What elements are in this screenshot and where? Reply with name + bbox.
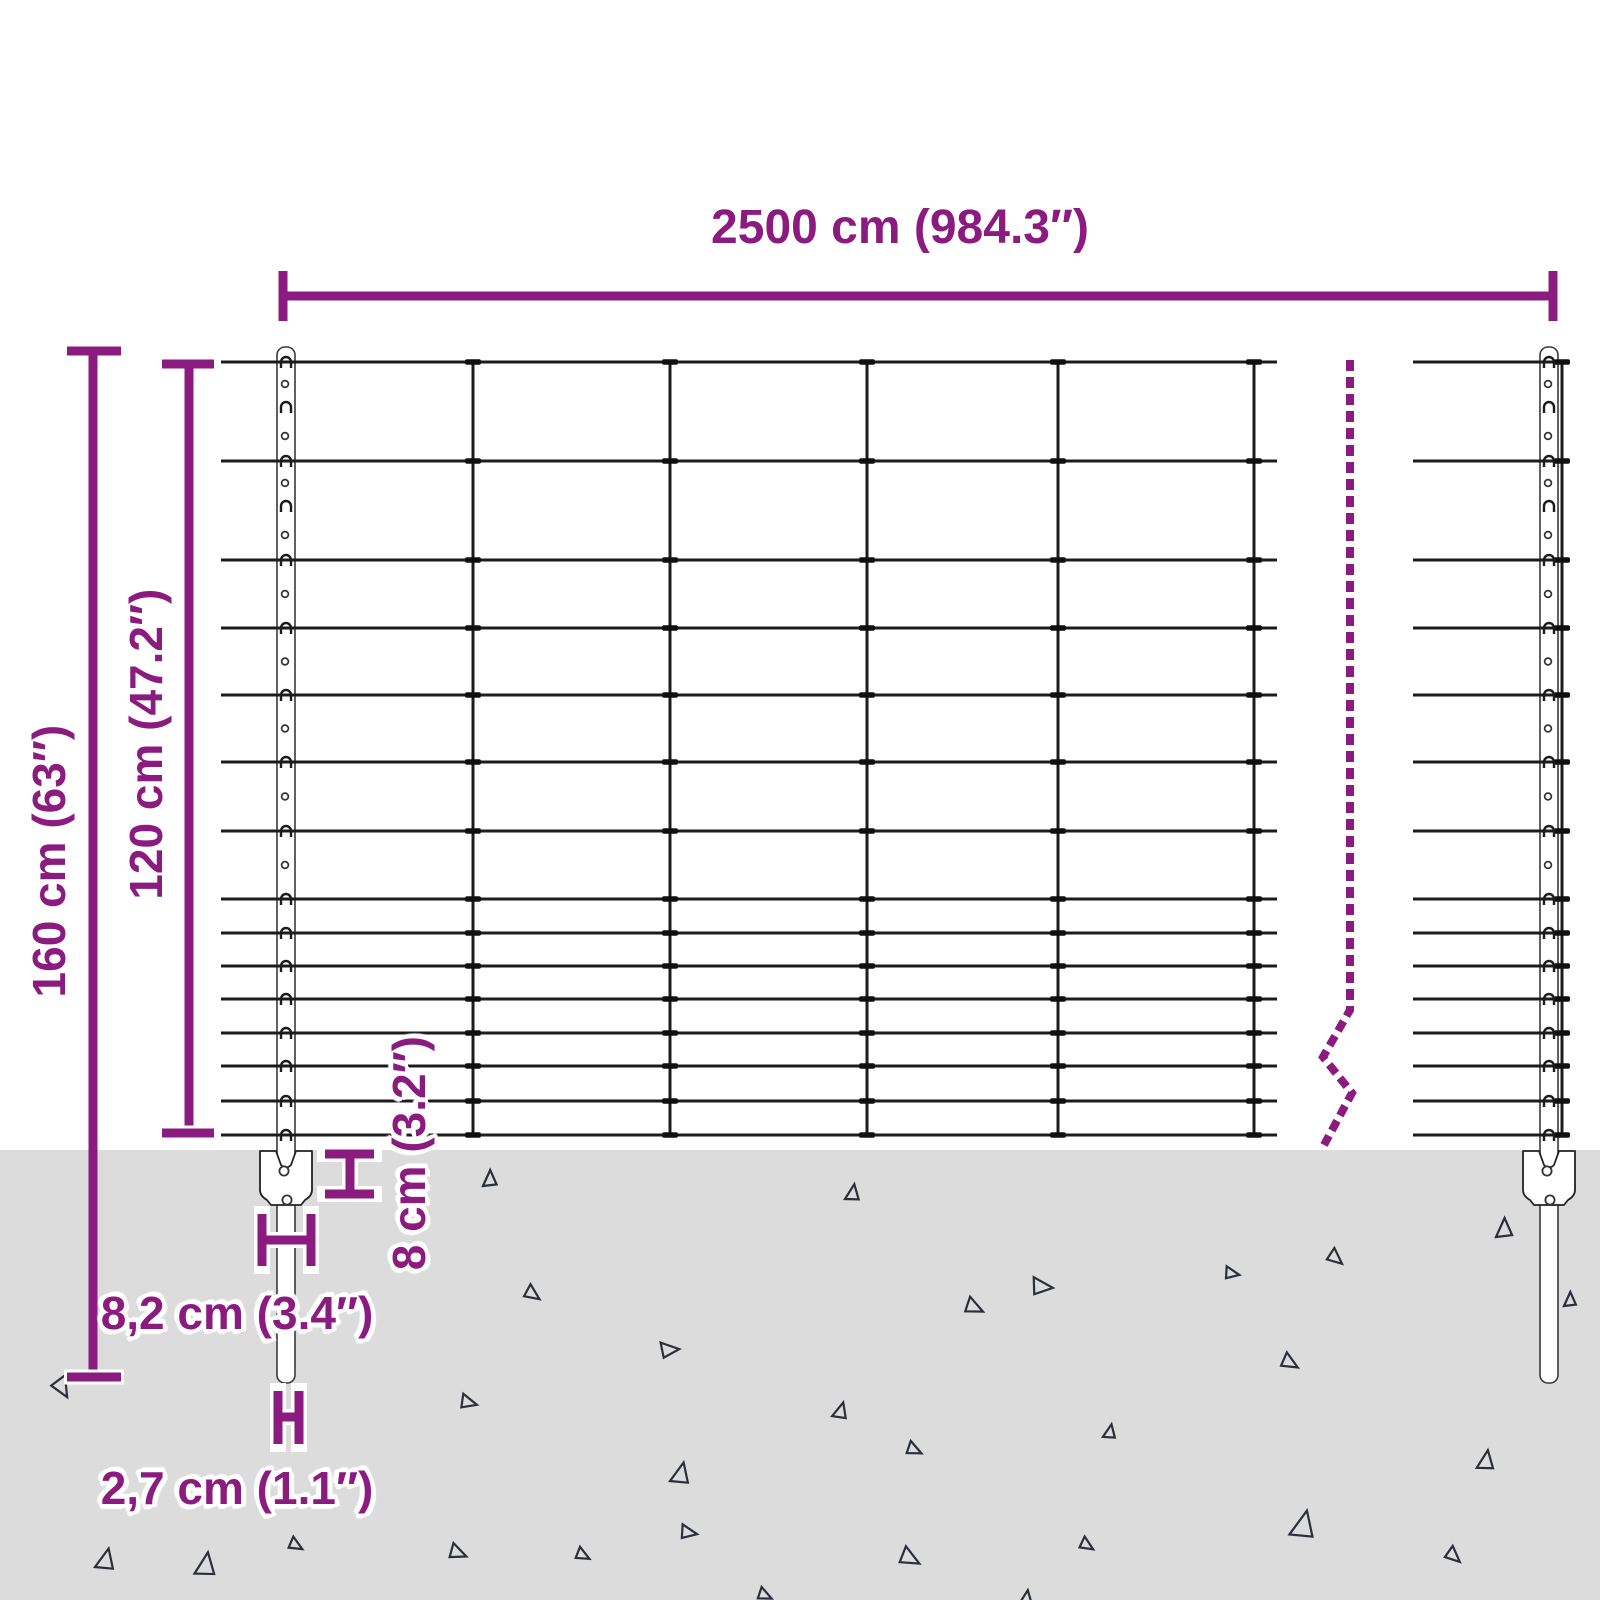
wire-knot [465,359,481,365]
wire-knot [1554,1030,1570,1036]
wire-knot [1050,1098,1066,1104]
post-hole [282,862,289,869]
wire-knot [1050,359,1066,365]
wire-knot [662,963,678,969]
wire-knot [465,1132,481,1138]
wire-knot [465,625,481,631]
net-height-dimension-label: 120 cm (47.2″) [122,489,170,999]
wire-knot [859,557,875,563]
wire-knot [662,1030,678,1036]
total-height-dimension-label: 160 cm (63″) [25,606,73,1116]
wire-knot [1554,359,1570,365]
wire-knot [662,1098,678,1104]
wire-knot [1554,1098,1570,1104]
post-thickness-dimension-label: 2,7 cm (1.1″) [7,1464,467,1512]
wire-knot [1050,828,1066,834]
post-hole [282,793,289,800]
post-hole [1545,591,1552,598]
wire-knot [1050,458,1066,464]
wire-knot [1050,692,1066,698]
wire-knot [662,1063,678,1069]
wire-knot [1246,1030,1262,1036]
wire-knot [1050,1030,1066,1036]
wire-knot [465,557,481,563]
fence-dimension-diagram: 2500 cm (984.3″) 160 cm (63″) 120 cm (47… [0,0,1600,1600]
wire-knot [1050,1063,1066,1069]
net-height-dimension-tick [162,1129,214,1138]
anchor-plate-hole [1542,1166,1551,1175]
wire-knot [1554,963,1570,969]
post-hole [282,480,289,487]
wire-knot [465,759,481,765]
wire-knot [1246,625,1262,631]
post-hole [282,658,289,665]
wire-knot [465,1098,481,1104]
net-height-dimension-tick [162,360,214,369]
wire-knot [1554,625,1570,631]
wire-knot [859,930,875,936]
wire-knot [1246,1063,1262,1069]
wire-knot [859,1098,875,1104]
wire-knot [662,557,678,563]
post-hole [1545,862,1552,869]
wire-knot [465,996,481,1002]
wire-knot [465,692,481,698]
wire-knot [859,896,875,902]
wire-knot [1246,1098,1262,1104]
wire-knot [859,359,875,365]
wire-knot [859,759,875,765]
wire-knot [662,359,678,365]
wire-knot [465,963,481,969]
wire-knot [662,759,678,765]
wire-knot [1050,996,1066,1002]
wire-knot [1050,759,1066,765]
wire-knot [662,896,678,902]
wire-knot [1554,896,1570,902]
post-hole [1545,793,1552,800]
wire-knot [1050,557,1066,563]
wire-knot [465,1063,481,1069]
post-hole [282,532,289,539]
wire-knot [859,458,875,464]
span-dimension-line [283,292,1553,301]
wire-knot [859,828,875,834]
wire-knot [662,625,678,631]
total-height-dimension-tick [67,347,121,356]
post-hole [282,725,289,732]
post-hole [282,381,289,388]
anchor-plate-hole [279,1166,288,1175]
wire-knot [1554,692,1570,698]
anchor-plate-width-dimension-label: 8,2 cm (3.4″) [7,1289,467,1337]
wire-knot [465,1030,481,1036]
wire-knot [1246,1132,1262,1138]
wire-knot [1050,1132,1066,1138]
wire-knot [859,1063,875,1069]
wire-knot [1246,458,1262,464]
post-hole [1545,725,1552,732]
wire-knot [859,963,875,969]
wire-knot [465,930,481,936]
wire-knot [1246,557,1262,563]
post-hole [1545,658,1552,665]
wire-knot [1554,930,1570,936]
wire-knot [1246,692,1262,698]
post-hole [1545,532,1552,539]
total-height-dimension-tick [67,1373,121,1382]
post-hole [1545,480,1552,487]
post-hole [1545,433,1552,440]
net-height-dimension-line [185,364,194,1133]
wire-knot [859,1132,875,1138]
wire-knot [662,458,678,464]
wire-knot [662,828,678,834]
post-hole [1545,381,1552,388]
wire-knot [1554,557,1570,563]
span-dimension-tick [1549,271,1558,321]
wire-knot [1246,930,1262,936]
ground-area [0,1150,1600,1600]
wire-knot [1554,996,1570,1002]
wire-knot [1554,828,1570,834]
wire-knot [1554,1063,1570,1069]
wire-knot [859,1030,875,1036]
wire-knot [1246,359,1262,365]
wire-knot [662,1132,678,1138]
wire-knot [1246,896,1262,902]
wire-knot [859,996,875,1002]
span-dimension-tick [279,271,288,321]
anchor-plate-hole [282,1195,291,1204]
wire-knot [1050,896,1066,902]
wire-knot [1050,963,1066,969]
wire-knot [1554,759,1570,765]
total-height-dimension-line [89,351,98,1377]
wire-knot [859,692,875,698]
anchor-plate-hole [1545,1195,1554,1204]
post-hole [282,433,289,440]
wire-knot [1246,996,1262,1002]
wire-knot [662,996,678,1002]
wire-knot [465,896,481,902]
wire-knot [1050,625,1066,631]
wire-knot [662,692,678,698]
wire-knot [465,458,481,464]
wire-knot [1050,930,1066,936]
break-dashed-line [1323,360,1352,1145]
wire-knot [859,625,875,631]
wire-knot [1246,963,1262,969]
wire-knot [662,930,678,936]
wire-knot [1246,828,1262,834]
wire-knot [1554,458,1570,464]
wire-knot [465,828,481,834]
wire-knot [1246,759,1262,765]
post-hole [282,591,289,598]
span-dimension-label: 2500 cm (984.3″) [600,203,1200,253]
wire-knot [1554,1132,1570,1138]
